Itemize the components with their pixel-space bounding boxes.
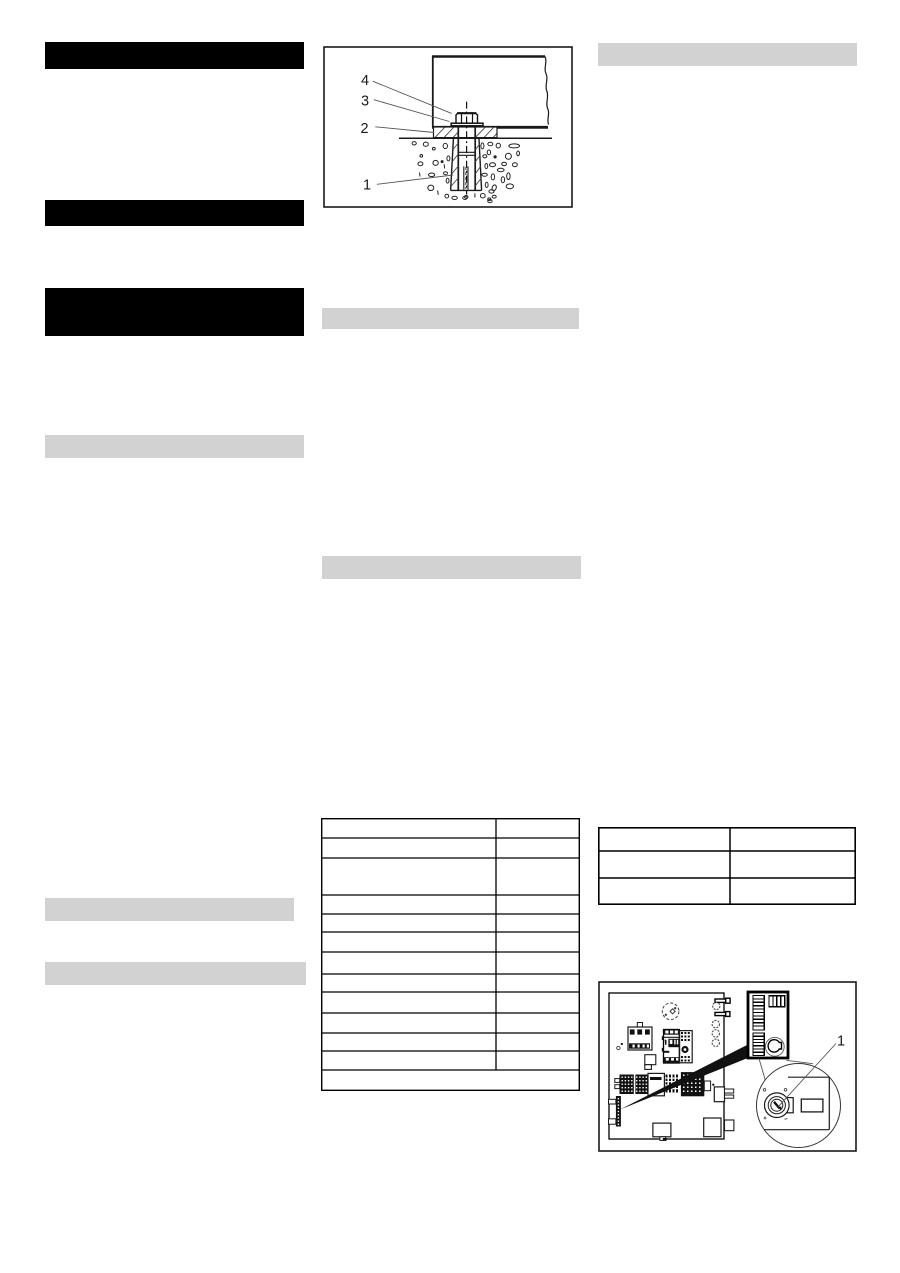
svg-text:1: 1 xyxy=(363,177,371,193)
svg-text:3: 3 xyxy=(361,93,369,109)
svg-text:1: 1 xyxy=(837,1034,845,1050)
svg-text:2: 2 xyxy=(361,121,369,137)
svg-text:4: 4 xyxy=(361,73,369,89)
